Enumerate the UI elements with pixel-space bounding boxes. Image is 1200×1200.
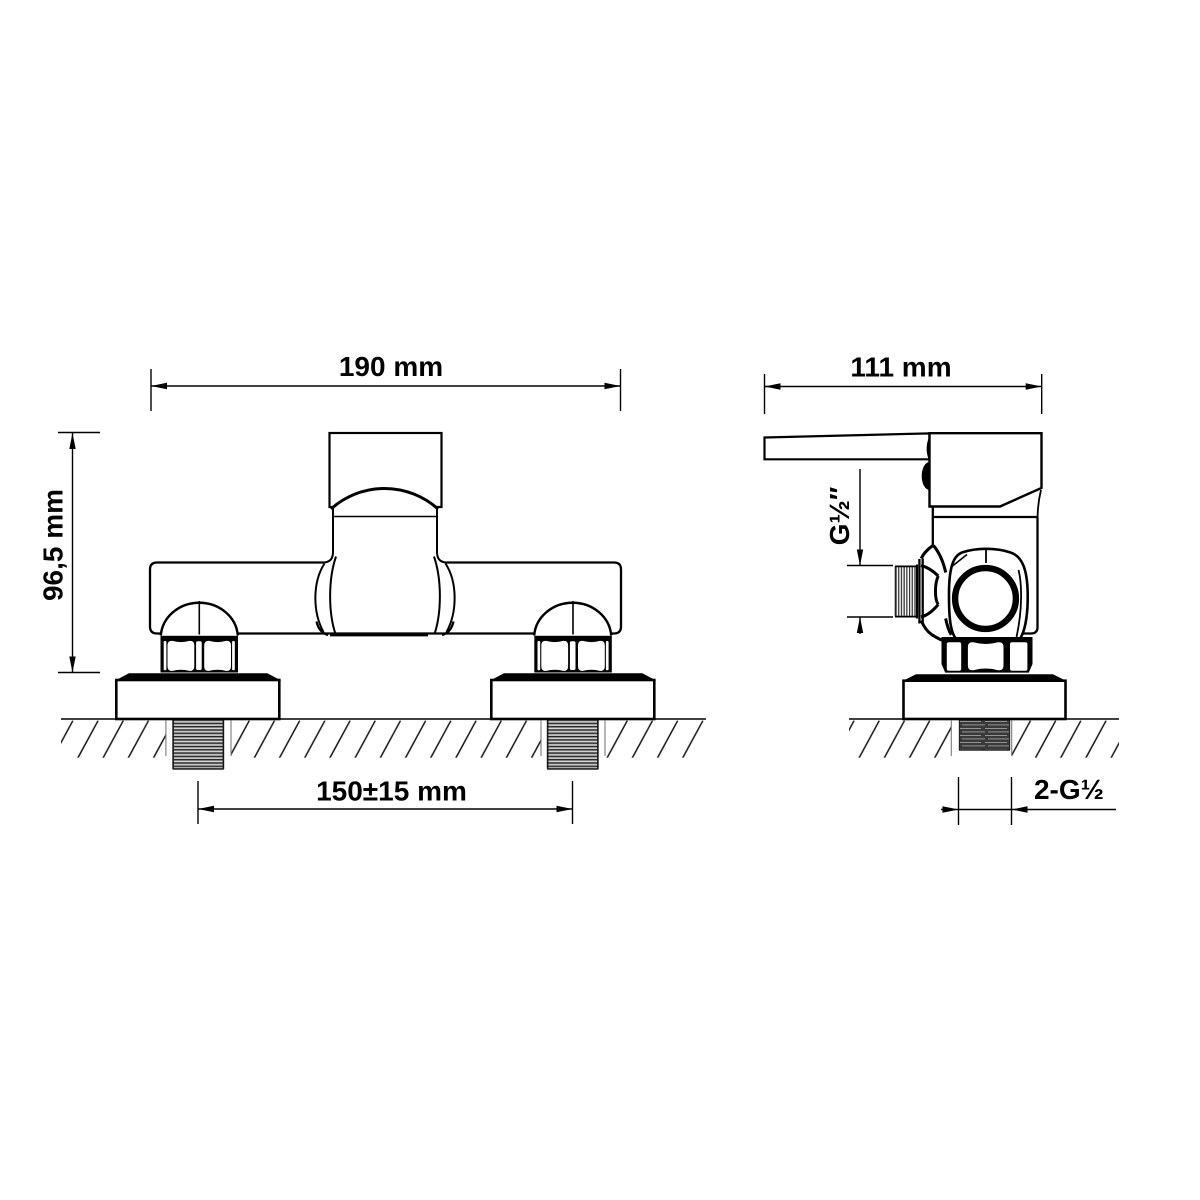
svg-text:150±15 mm: 150±15 mm bbox=[316, 776, 467, 807]
svg-text:111 mm: 111 mm bbox=[850, 352, 951, 383]
svg-text:G½″: G½″ bbox=[824, 487, 855, 546]
svg-text:96,5 mm: 96,5 mm bbox=[38, 489, 69, 601]
svg-text:2-G½: 2-G½ bbox=[1034, 774, 1104, 805]
svg-text:190 mm: 190 mm bbox=[339, 351, 443, 382]
